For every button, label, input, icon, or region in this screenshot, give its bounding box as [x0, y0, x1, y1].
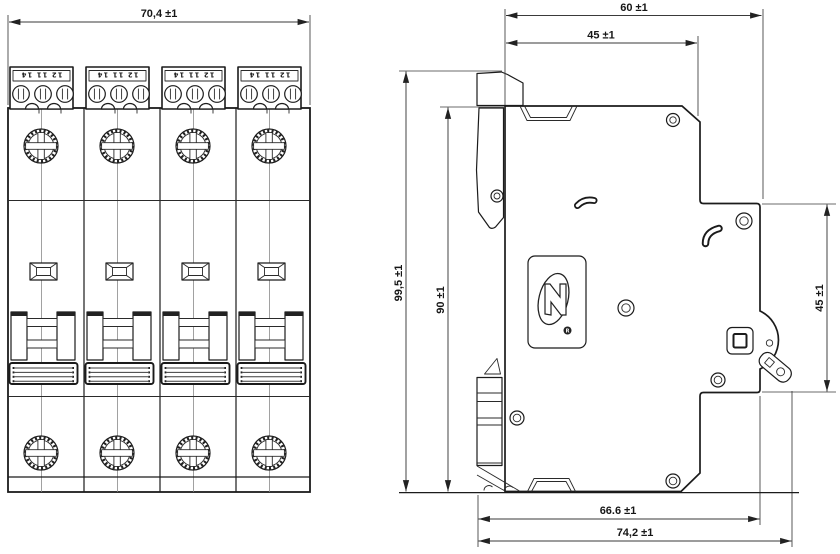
toggle-lever — [477, 108, 504, 228]
dimension-height-overall: 99,5 ±1 — [393, 72, 406, 492]
dimension-label: 45 ±1 — [587, 30, 614, 42]
breaker-body-outline — [8, 108, 310, 492]
dimension-label: 99,5 ±1 — [393, 265, 405, 302]
lever-rivet-icon — [491, 190, 503, 202]
technical-drawing-sheet: 12 11 14 — [0, 0, 840, 554]
dimension-label: 60 ±1 — [620, 2, 647, 14]
dimension-label: 90 ±1 — [435, 286, 447, 313]
dimension-label: 66.6 ±1 — [600, 505, 637, 517]
dimension-front-width: 70,4 ±1 — [9, 8, 309, 22]
dimension-label: 74,2 ±1 — [617, 527, 654, 539]
terminal-shroud — [477, 72, 523, 106]
dimension-recess-height: 45 ±1 — [814, 205, 827, 392]
logo-badge: R — [528, 256, 586, 348]
dimension-label: 70,4 ±1 — [141, 8, 178, 20]
busbar-terminal — [727, 328, 753, 355]
registered-mark-letter: R — [566, 328, 570, 334]
dimension-depth-total: 60 ±1 — [506, 2, 762, 16]
dimension-label: 45 ±1 — [814, 284, 826, 311]
front-latch-tab — [485, 359, 501, 375]
dimension-height-body: 90 ±1 — [435, 108, 448, 492]
din-guide-rail — [477, 378, 502, 466]
front-view — [8, 67, 310, 492]
side-view: R — [477, 72, 795, 492]
dimension-max-depth: 74,2 ±1 — [479, 527, 792, 541]
dimension-base-depth: 66.6 ±1 — [479, 505, 760, 519]
dimension-depth-front-step: 45 ±1 — [506, 30, 697, 44]
circuit-breaker-dimension-drawing: 12 11 14 — [0, 0, 840, 554]
